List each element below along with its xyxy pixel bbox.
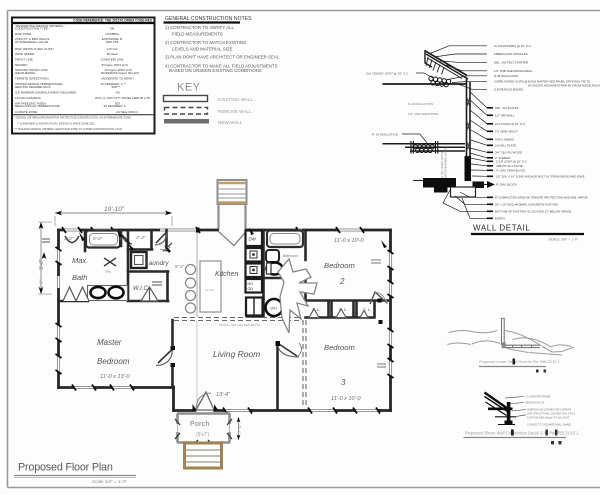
svg-text:C.L.: C.L.	[312, 307, 320, 312]
svg-text:4" CMU STEM BLOCK: 4" CMU STEM BLOCK	[496, 169, 526, 173]
svg-text:8" COMPACTED SAND W/ TERMITE P: 8" COMPACTED SAND W/ TERMITE PROTECTION …	[495, 196, 588, 200]
svg-text:GENERAL CONSTRUCTION NOTES: GENERAL CONSTRUCTION NOTES	[165, 16, 252, 22]
svg-text:SIMPSON H2.5A: SIMPSON H2.5A	[525, 402, 545, 405]
svg-text:HO: HO	[248, 282, 254, 286]
svg-text:FIBERGLASS SHINGLES: FIBERGLASS SHINGLES	[494, 52, 528, 56]
svg-text:EXISTING WALL: EXISTING WALL	[218, 97, 254, 102]
svg-text:2: 2	[339, 277, 345, 286]
svg-text:Master: Master	[97, 338, 122, 347]
svg-text:Kitchen: Kitchen	[215, 271, 238, 278]
svg-text:BOTTOM OF FOOTING IS LOCATED: BOTTOM OF FOOTING IS LOCATED 12" BELOW G…	[495, 210, 571, 214]
svg-text:SCALE: 3/4" = 1'-0": SCALE: 3/4" = 1'-0"	[548, 238, 578, 242]
svg-text:CUSTOM SIZE Hanger TO 2x6 JOIS: CUSTOM SIZE Hanger TO 2x6 JOIST	[527, 417, 570, 420]
svg-text:BASED ON UNSEEN EXISTING CONDI: BASED ON UNSEEN EXISTING CONDITIONS	[169, 68, 262, 73]
svg-text:7'-0": 7'-0"	[237, 423, 242, 433]
svg-text:R-30 INSULATION: R-30 INSULATION	[408, 102, 433, 106]
svg-text:CLIMATE ZONE:: CLIMATE ZONE:	[15, 110, 38, 114]
svg-text:B Figure R301 (2.2): B Figure R301 (2.2)	[102, 63, 128, 67]
svg-text:CONSTRUCTION TYPE:: CONSTRUCTION TYPE:	[15, 27, 49, 31]
svg-text:1/2" OSB SHEATHING/WRAL: 1/2" OSB SHEATHING/WRAL	[494, 69, 533, 73]
svg-text:19'-10": 19'-10"	[104, 206, 125, 213]
svg-text:98 Vasd: 98 Vasd	[107, 52, 118, 56]
svg-text:FOR STRUCTURAL CONNECTION 4 P: FOR STRUCTURAL CONNECTION 4 PCS	[527, 413, 575, 416]
svg-text:VINYL SIDING: VINYL SIDING	[495, 138, 515, 142]
svg-text:Bath: Bath	[72, 273, 87, 282]
svg-text:S (WATER) LINE: S (WATER) LINE	[101, 57, 124, 61]
svg-text:JAB PIT SILL PLATE: JAB PIT SILL PLATE	[496, 164, 523, 168]
svg-text:3) PLAN DON'T HAVE ARCHITECT: 3) PLAN DON'T HAVE ARCHITECT OR ENGINEER…	[165, 55, 280, 60]
svg-text:66 DEGREES. F: 66 DEGREES. F	[104, 104, 127, 108]
svg-text:Proposed Lower Detail Roof As: Proposed Lower Detail Roof As Per RBC201…	[479, 360, 560, 364]
svg-text:5'-0": 5'-0"	[39, 279, 45, 289]
svg-text:3'-4": 3'-4"	[136, 235, 146, 241]
svg-text:11'-0 x 10'-0: 11'-0 x 10'-0	[334, 238, 364, 244]
svg-text:2 x 6 RAFTER FRAME: 2 x 6 RAFTER FRAME	[525, 396, 551, 399]
svg-text:13'-4": 13'-4"	[216, 392, 231, 398]
svg-text:SEISMIC:: SEISMIC:	[15, 63, 28, 67]
svg-text:RISK WINDS (3 SEC GUST):: RISK WINDS (3 SEC GUST):	[15, 47, 55, 51]
svg-text:(9'x7'): (9'x7')	[196, 432, 210, 438]
svg-text:ICE BARRIER UNDERLAYMENT REQUI: ICE BARRIER UNDERLAYMENT REQUIRED:	[15, 90, 77, 94]
svg-text:9'-0": 9'-0"	[175, 264, 185, 269]
svg-text:3: 3	[341, 378, 346, 387]
svg-text:WIND SPEED:: WIND SPEED:	[15, 52, 35, 56]
svg-text:* DESIGN CRITERIA/ORGANIZATION: * DESIGN CRITERIA/ORGANIZATION PROTECTIV…	[15, 116, 131, 120]
svg-text:2 S.R JOIST @ 16" O.C.: 2 S.R JOIST @ 16" O.C.	[496, 160, 528, 164]
svg-text:Proposed Shear Wall Connection: Proposed Shear Wall Connection Detail 3 …	[465, 431, 579, 436]
svg-text:4" MIL CRAWL SPACE: 4" MIL CRAWL SPACE	[440, 151, 444, 178]
svg-text:5'-0": 5'-0"	[93, 236, 103, 241]
svg-text:SIMPSON SD CONNECTOR SCREWS: SIMPSON SD CONNECTOR SCREWS	[527, 409, 571, 412]
svg-text:3'-0": 3'-0"	[119, 236, 129, 241]
svg-text:11'-0 x 13'-0: 11'-0 x 13'-0	[100, 374, 130, 380]
svg-text:ISLAND: ISLAND	[205, 288, 214, 292]
svg-text:MEAN ANNUAL TEMPERATURE:: MEAN ANNUAL TEMPERATURE:	[15, 104, 61, 108]
svg-text:** CONSUMER CLASSIFICATION / D: ** CONSUMER CLASSIFICATION / DESIGN CLIM…	[17, 122, 95, 126]
svg-text:1/XX/BRG: 1/XX/BRG	[105, 32, 120, 36]
svg-text:CONNECT TO SQUARE WALL JAMBS: CONNECT TO SQUARE WALL JAMBS	[527, 424, 571, 427]
svg-text:FLOOD HAZARDS:: FLOOD HAZARDS:	[15, 96, 42, 100]
svg-text:W/ ZIGZAG ANCHOR/STRAP 48" FRO: W/ ZIGZAG ANCHOR/STRAP 48" FROM RIDGE AN…	[528, 84, 600, 88]
svg-text:8" CMU BLOCK: 8" CMU BLOCK	[496, 183, 517, 187]
svg-text:1/2" OSB SHEATHING: 1/2" OSB SHEATHING	[408, 112, 439, 116]
svg-text:OD: OD	[248, 287, 254, 291]
svg-text:Bathroom: Bathroom	[283, 254, 298, 258]
svg-text:Living Room: Living Room	[213, 349, 260, 359]
svg-text:R- 19 INSULATION: R- 19 INSULATION	[372, 133, 398, 137]
svg-text:Bedroom: Bedroom	[324, 261, 355, 270]
svg-text:9'-0": 9'-0"	[39, 258, 45, 270]
svg-text:2A Table R301.2: 2A Table R301.2	[116, 110, 138, 114]
svg-text:Fn: Fn	[106, 269, 111, 274]
svg-text:C.L.: C.L.	[363, 307, 371, 312]
svg-text:EARTH: EARTH	[495, 217, 505, 221]
svg-text:11'-0 x 10'-0: 11'-0 x 10'-0	[331, 396, 361, 402]
svg-text:VB: VB	[110, 27, 114, 31]
svg-text:W/ SHEARWALL VALUE:: W/ SHEARWALL VALUE:	[15, 40, 49, 44]
svg-text:WALL DETAIL: WALL DETAIL	[473, 224, 530, 233]
svg-text:NEW WALL: NEW WALL	[218, 120, 243, 125]
svg-text:R-38 INSULATION: R-38 INSULATION	[494, 74, 518, 78]
svg-text:WEATHERING:: WEATHERING:	[15, 71, 36, 75]
svg-text:MODERATE TO HEAVY: MODERATE TO HEAVY	[102, 77, 134, 81]
svg-text:1500 PSF: 1500 PSF	[105, 40, 119, 44]
svg-text:2x6 CEILING JOIST @ 16" O.C.: 2x6 CEILING JOIST @ 16" O.C.	[366, 72, 409, 76]
svg-text:C.L.: C.L.	[339, 307, 347, 312]
svg-text:LEVELS AND MATERIAL SIZE: LEVELS AND MATERIAL SIZE	[172, 47, 233, 52]
svg-text:FIELD MEASUREMENTS: FIELD MEASUREMENTS	[172, 32, 223, 37]
svg-text:DW: DW	[249, 237, 257, 242]
svg-text:MODERATE Figure 301.2(3): MODERATE Figure 301.2(3)	[101, 71, 139, 75]
svg-text:HEATING DEGREE DAYS:: HEATING DEGREE DAYS:	[15, 85, 51, 89]
svg-text:Max.: Max.	[72, 256, 88, 265]
svg-text:INSTALL NEW HEADER ABOVE: INSTALL NEW HEADER ABOVE	[219, 323, 260, 327]
svg-text:20" x 10" W/(2) #5 BARS CONCRE: 20" x 10" W/(2) #5 BARS CONCRETE FOOTING	[495, 203, 559, 207]
svg-text:FROST LINE:: FROST LINE:	[15, 57, 34, 61]
svg-text:VAPOR BARRIER UNDER: VAPOR BARRIER UNDER	[444, 147, 448, 178]
svg-text:DBL. 2x4 PLATES: DBL. 2x4 PLATES	[495, 106, 519, 110]
svg-text:Scale 1/4" = 1'-0": Scale 1/4" = 1'-0"	[92, 479, 128, 484]
svg-text:3'-0": 3'-0"	[64, 236, 74, 241]
svg-text:KEY: KEY	[177, 82, 201, 94]
svg-text:2) CONTRACTOR TO MATCH EXISTI: 2) CONTRACTOR TO MATCH EXISTING	[165, 40, 247, 45]
svg-text:1/2" DRYWALL: 1/2" DRYWALL	[495, 114, 515, 118]
svg-text:TO CRIB GROUT: TO CRIB GROUT	[495, 130, 518, 134]
svg-text:*** BUILDING DESIGN CRITERIA:: *** BUILDING DESIGN CRITERIA: HEAT/COLD …	[15, 127, 122, 131]
svg-text:2014, IL JOIN CITY PANEL 2008-: 2014, IL JOIN CITY PANEL 2008-05 L-05	[95, 96, 150, 100]
svg-text:TERMITE INFESTATION:: TERMITE INFESTATION:	[15, 77, 49, 81]
svg-text:RISK ZONE:: RISK ZONE:	[15, 32, 32, 36]
svg-text:500***: 500***	[111, 85, 120, 89]
svg-text:2x 4/6 RAFTERS @ 16" O.C.: 2x 4/6 RAFTERS @ 16" O.C.	[494, 44, 532, 48]
svg-text:Bedroom: Bedroom	[324, 343, 355, 352]
svg-text:3/4" T&G PLYWOOD: 3/4" T&G PLYWOOD	[495, 151, 522, 155]
svg-text:Porch: Porch	[190, 421, 210, 428]
svg-text:S.B FRANCIS BOARD: S.B FRANCIS BOARD	[494, 87, 523, 91]
svg-text:1) CONTRACTOR TO VERIFY ALL: 1) CONTRACTOR TO VERIFY ALL	[165, 25, 235, 30]
svg-text:W.I.C.: W.I.C.	[133, 286, 149, 292]
svg-text:2x4 SILL PLATE: 2x4 SILL PLATE	[495, 144, 516, 148]
svg-text:2x4 STUDS @ 16" O.C.: 2x4 STUDS @ 16" O.C.	[495, 122, 526, 126]
svg-text:Bedroom: Bedroom	[97, 357, 130, 366]
svg-text:REMOVE WALL: REMOVE WALL	[218, 109, 252, 114]
svg-text:1/2" DIA. 4 10" LONG ANCHOR B: 1/2" DIA. 4 10" LONG ANCHOR BOLT 16" FRO…	[496, 175, 585, 179]
svg-text:WH: WH	[271, 307, 278, 311]
svg-text:NO: NO	[116, 90, 121, 94]
svg-text:Laundry: Laundry	[145, 260, 169, 267]
svg-text:Proposed Floor Plan: Proposed Floor Plan	[18, 462, 113, 474]
svg-text:DBL. 1X6 FELT STARTER: DBL. 1X6 FELT STARTER	[494, 61, 528, 65]
svg-text:170 Vult: 170 Vult	[107, 47, 118, 51]
